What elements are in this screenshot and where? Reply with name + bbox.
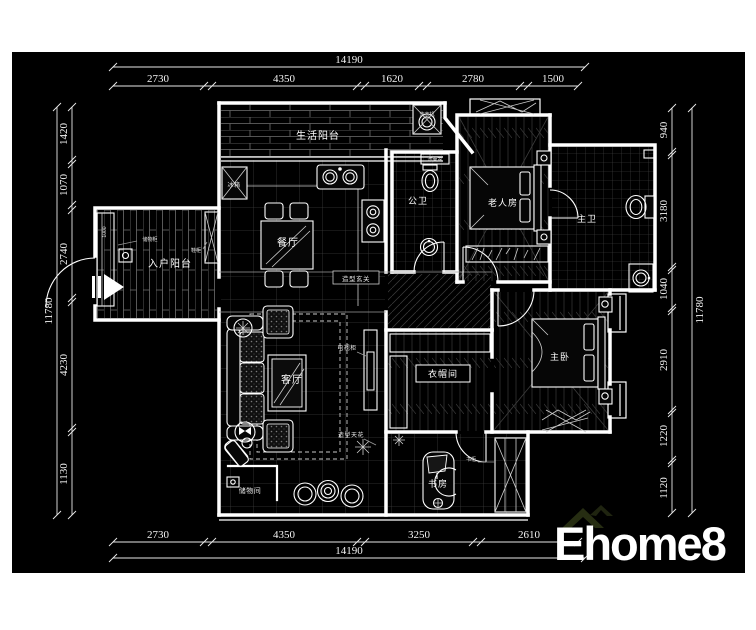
dim-top-seg: 1620 [381, 73, 404, 85]
label-tv-cabinet: 电视柜 [337, 344, 357, 352]
label-cabinet-width: 1000 [102, 226, 108, 237]
dim-left-seg: 4230 [58, 354, 70, 377]
label-shoe-cabinet: 鞋柜 [191, 247, 201, 254]
dim-right-seg: 1120 [658, 477, 670, 499]
nightstand [599, 389, 612, 404]
nightstand [537, 151, 551, 165]
plant-pot [234, 319, 252, 337]
label-storage-cabinet: 储物柜 [142, 236, 157, 243]
dim-bottom-seg: 2610 [518, 529, 541, 541]
room-label-dining: 餐厅 [277, 236, 299, 249]
dim-right-total: 11780 [694, 296, 706, 324]
label-ceiling-feature: 造型天花 [338, 431, 364, 439]
armchair [263, 306, 293, 338]
label-entry-feature: 造型玄关 [342, 274, 370, 283]
dim-left-seg: 1420 [58, 123, 70, 146]
room-label-entry-balcony: 入户阳台 [148, 257, 192, 270]
kitchen-sink [317, 165, 364, 189]
dim-top-seg: 2780 [462, 73, 485, 85]
dim-left-seg: 2740 [58, 243, 70, 266]
dim-top-total: 14190 [335, 54, 363, 66]
dim-top-seg: 2730 [147, 73, 170, 85]
label-bookcase: 书柜 [466, 456, 476, 463]
dim-top-seg: 4350 [273, 73, 296, 85]
dim-left-seg: 1130 [58, 463, 70, 485]
room-label-public-bath: 公卫 [408, 196, 428, 206]
dim-bottom-seg: 4350 [273, 529, 296, 541]
dim-bottom-seg: 3250 [408, 529, 431, 541]
dim-left-seg: 1070 [58, 174, 70, 197]
room-label-study: 书房 [428, 478, 448, 489]
room-label-master-bedroom: 主卧 [550, 351, 570, 362]
room-label-elder-room: 老人房 [488, 197, 518, 208]
nightstand [537, 230, 551, 244]
brand-logo-text: Ehome8 [554, 517, 726, 570]
watermark: Ehome8 家装．缔造完美生活 [554, 505, 727, 590]
armchair [263, 420, 293, 452]
brand-tagline: 家装．缔造完美生活 [560, 575, 727, 590]
room-label-cloakroom: 衣帽间 [428, 368, 458, 379]
stove [362, 200, 384, 242]
dim-top-seg: 1500 [542, 73, 565, 85]
label-fridge: 冰箱 [227, 181, 240, 189]
room-label-master-bath: 主卫 [577, 213, 597, 224]
dim-bottom-seg: 2730 [147, 529, 170, 541]
dim-right-seg: 1040 [658, 278, 670, 301]
floor-plan-canvas: 生活阳台 餐厅 公卫 老人房 主卫 入户阳台 客厅 衣帽间 主卧 书房 储物间 … [0, 0, 756, 630]
room-label-storage: 储物间 [239, 486, 262, 495]
entry-arrow-bar [98, 276, 101, 298]
dim-right-seg: 2910 [658, 349, 670, 372]
room-label-living-room: 客厅 [281, 373, 303, 386]
label-basin: 洗面盆 [427, 156, 442, 163]
nightstand [599, 297, 612, 312]
dim-left-total: 11780 [43, 297, 55, 325]
dim-right-seg: 1220 [658, 425, 670, 448]
dim-right-seg: 940 [658, 121, 670, 138]
dim-bottom-total: 14190 [335, 545, 363, 557]
room-label-living-balcony: 生活阳台 [296, 129, 340, 142]
label-washing-machine: 洗衣机 [419, 111, 434, 118]
washing-machine [413, 105, 441, 134]
entry-arrow-bar [92, 276, 95, 298]
floor-plan-page: 生活阳台 餐厅 公卫 老人房 主卫 入户阳台 客厅 衣帽间 主卧 书房 储物间 … [0, 0, 756, 630]
dim-right-seg: 3180 [658, 200, 670, 223]
sofa [227, 316, 264, 440]
